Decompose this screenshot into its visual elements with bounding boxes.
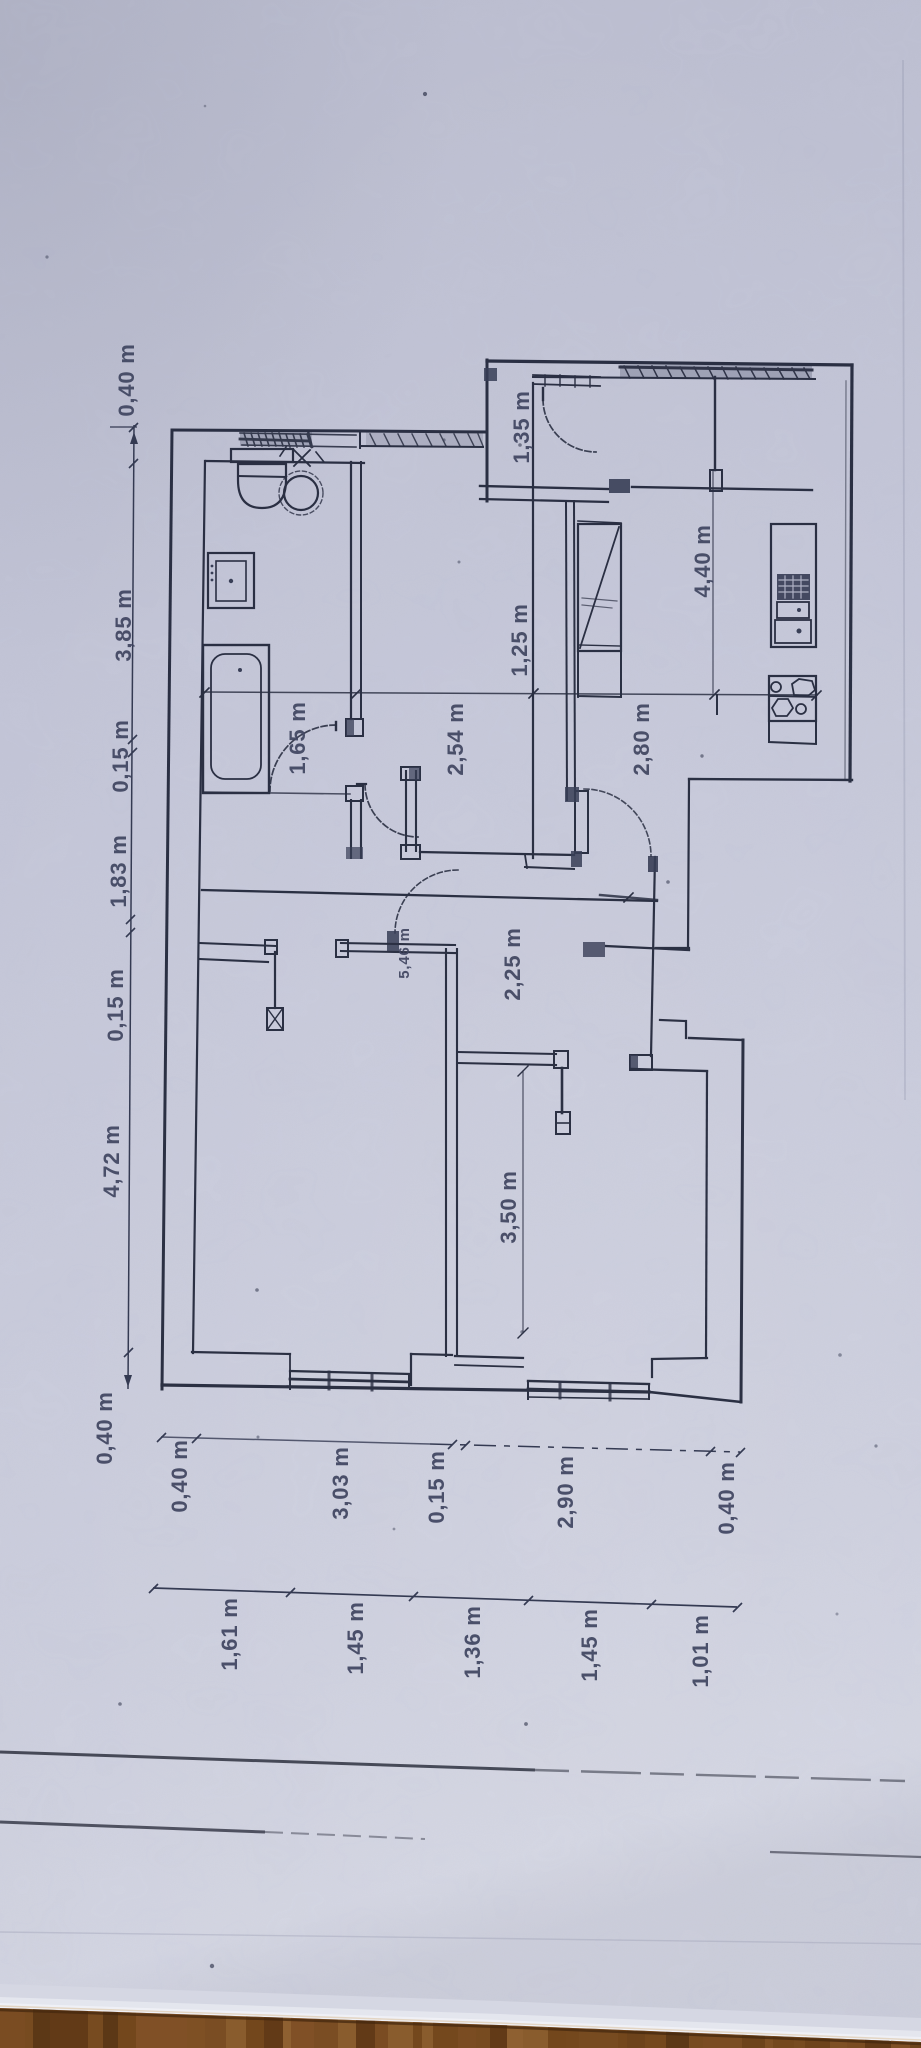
svg-text:0,15 m: 0,15 m	[108, 719, 133, 792]
svg-text:0,15 m: 0,15 m	[424, 1450, 449, 1523]
svg-text:1,45 m: 1,45 m	[343, 1601, 368, 1674]
svg-text:2,90 m: 2,90 m	[553, 1455, 578, 1528]
svg-text:3,03 m: 3,03 m	[328, 1446, 353, 1519]
svg-text:0,40 m: 0,40 m	[714, 1461, 739, 1534]
svg-text:1,01 m: 1,01 m	[688, 1614, 713, 1687]
svg-text:4,72 m: 4,72 m	[99, 1124, 124, 1197]
svg-text:0,15 m: 0,15 m	[103, 968, 128, 1041]
svg-text:1,61 m: 1,61 m	[217, 1597, 242, 1670]
svg-text:0,40 m: 0,40 m	[167, 1439, 192, 1512]
svg-text:2,54 m: 2,54 m	[443, 702, 468, 775]
svg-text:2,25 m: 2,25 m	[500, 927, 525, 1000]
svg-text:5,46 m: 5,46 m	[396, 927, 413, 979]
svg-text:1,36 m: 1,36 m	[460, 1605, 485, 1678]
svg-text:1,83 m: 1,83 m	[106, 834, 131, 907]
svg-text:1,25 m: 1,25 m	[507, 603, 532, 676]
svg-text:2,80 m: 2,80 m	[629, 702, 654, 775]
svg-text:3,50 m: 3,50 m	[496, 1170, 521, 1243]
svg-text:4,40 m: 4,40 m	[690, 524, 715, 597]
svg-text:1,45 m: 1,45 m	[577, 1608, 602, 1681]
svg-text:1,65 m: 1,65 m	[285, 701, 310, 774]
svg-text:1,35 m: 1,35 m	[509, 390, 534, 463]
svg-text:0,40 m: 0,40 m	[114, 343, 139, 416]
svg-text:0,40 m: 0,40 m	[92, 1391, 117, 1464]
svg-text:3,85 m: 3,85 m	[111, 588, 136, 661]
